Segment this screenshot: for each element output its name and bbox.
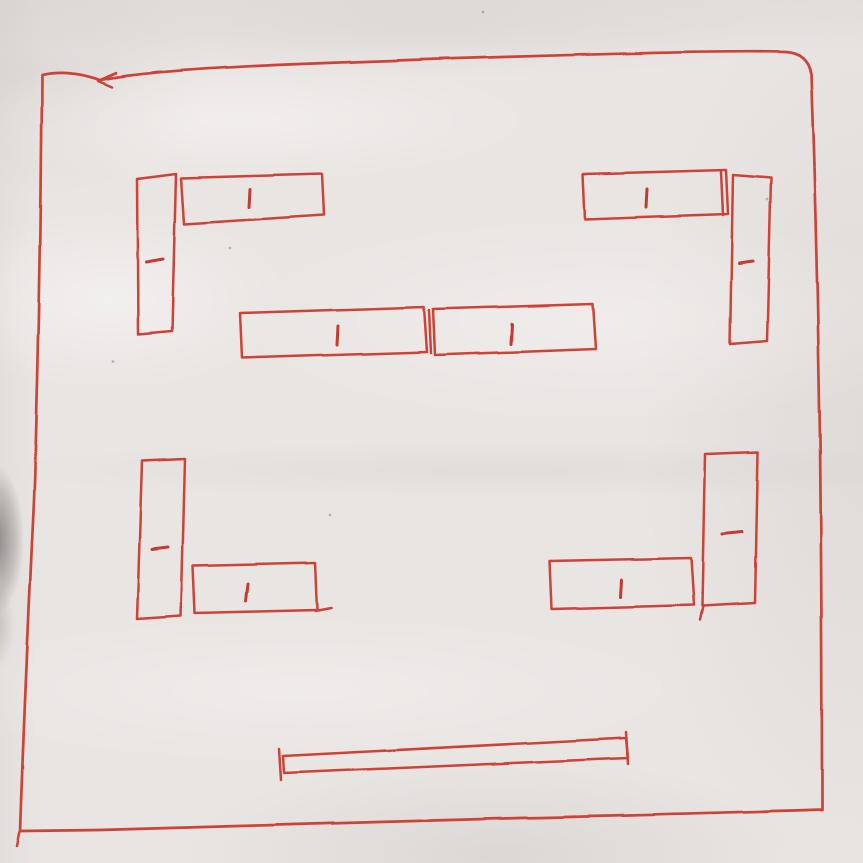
tail-bottom-right-vertical — [700, 606, 703, 620]
sketch-svg — [0, 0, 863, 863]
desk-bottom-left-horizontal — [193, 563, 317, 613]
desk-top-right-horizontal-tick — [646, 189, 647, 207]
corner-tail-bottom-left — [17, 831, 20, 846]
desk-bottom-right-vertical-tick — [722, 532, 742, 534]
double-edge-top-right-desk — [721, 172, 723, 215]
desk-top-left-horizontal-tick — [249, 189, 250, 207]
desk-center-left — [240, 307, 427, 358]
desk-bottom-right-vertical — [702, 452, 758, 606]
photo-of-paper-sketch — [0, 0, 863, 863]
paper-speck — [482, 11, 485, 14]
desk-top-right-vertical-tick — [739, 261, 753, 263]
desk-top-left-vertical — [137, 174, 176, 334]
desk-center-left-tick — [337, 326, 338, 345]
desk-top-left-vertical-tick — [146, 259, 163, 262]
pen-strokes-layer — [17, 11, 822, 846]
desk-bottom-left-horizontal-tick — [246, 584, 248, 601]
desk-top-right-vertical — [730, 175, 771, 344]
double-edge-center-right — [429, 310, 431, 353]
desk-center-right — [433, 304, 596, 355]
room-outline — [20, 52, 822, 831]
bottom-bar — [283, 738, 628, 773]
desk-center-right-tick — [511, 324, 512, 344]
desk-top-left-horizontal — [181, 174, 324, 224]
desk-bottom-right-horizontal-tick — [621, 580, 622, 597]
desk-bottom-left-vertical-tick — [152, 547, 168, 549]
paper-speck — [329, 514, 332, 517]
paper-speck — [766, 199, 769, 202]
desk-bottom-left-vertical — [137, 459, 185, 619]
bar-left-serif — [279, 749, 281, 780]
paper-speck — [112, 360, 115, 363]
paper-speck — [229, 247, 232, 250]
desk-bottom-right-horizontal — [549, 558, 694, 609]
desk-top-right-horizontal — [583, 170, 728, 219]
